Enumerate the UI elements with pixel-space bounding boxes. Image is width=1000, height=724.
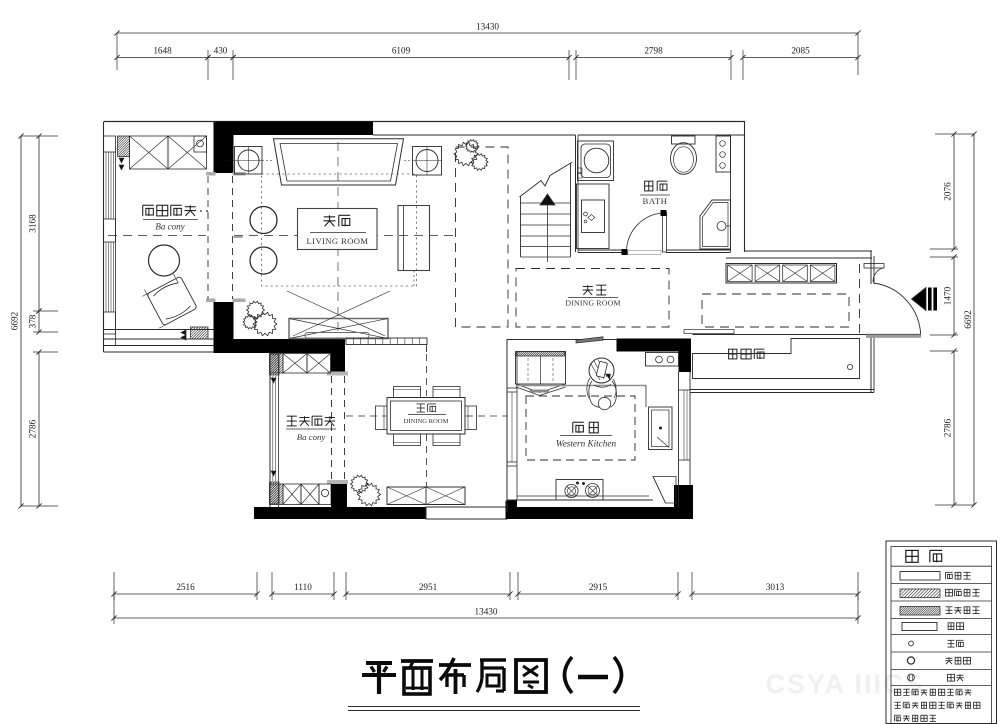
svg-text:2786: 2786 [28, 419, 38, 438]
svg-text:1470: 1470 [943, 286, 953, 305]
svg-text:Western Kitchen: Western Kitchen [556, 439, 617, 449]
svg-text:430: 430 [214, 46, 228, 56]
svg-text:2516: 2516 [176, 582, 195, 592]
svg-text:1110: 1110 [294, 582, 312, 592]
svg-text:6692: 6692 [963, 310, 973, 329]
svg-text:DINING ROOM: DINING ROOM [565, 299, 620, 308]
svg-text:378: 378 [28, 314, 38, 328]
svg-text:LIVING ROOM: LIVING ROOM [307, 236, 369, 246]
svg-text:13430: 13430 [475, 607, 498, 617]
svg-text:6692: 6692 [10, 311, 20, 330]
svg-text:3013: 3013 [766, 582, 785, 592]
svg-text:2951: 2951 [419, 582, 438, 592]
svg-text:2798: 2798 [644, 46, 663, 56]
svg-text:2786: 2786 [943, 418, 953, 437]
svg-text:2076: 2076 [943, 182, 953, 201]
svg-text:BATH: BATH [643, 196, 668, 206]
svg-text:3168: 3168 [28, 214, 38, 233]
svg-text:DINING ROOM: DINING ROOM [404, 418, 449, 425]
svg-text:Ba cony: Ba cony [297, 432, 326, 442]
svg-text:Ba cony: Ba cony [155, 222, 184, 232]
svg-text:1648: 1648 [153, 46, 172, 56]
svg-text:13430: 13430 [476, 22, 499, 32]
svg-text:6109: 6109 [392, 46, 411, 56]
svg-text:2085: 2085 [791, 46, 810, 56]
svg-text:2915: 2915 [589, 582, 608, 592]
